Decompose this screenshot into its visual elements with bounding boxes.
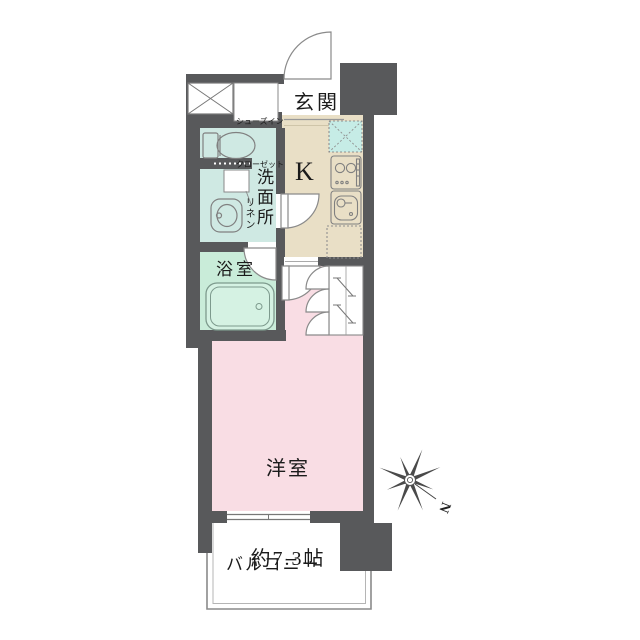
wall-segment [363, 115, 374, 523]
wall-segment [186, 74, 200, 348]
compass-ring [405, 475, 416, 486]
bathtub-outer [206, 283, 274, 330]
service-shaft [188, 83, 233, 114]
compass-north-label: N [435, 500, 453, 515]
closet [329, 266, 363, 335]
floorplan: N シューズイン クローゼット 玄関 K 洗面所 リネン 浴室 洋室 約7.3帖… [0, 0, 640, 640]
bathroom-label: 浴室 [216, 255, 256, 280]
entrance-label: 玄関 [294, 86, 340, 115]
washing-machine-space [329, 121, 362, 152]
wall-pillar-bottom-right [340, 523, 392, 571]
wall-pillar-top-right [340, 63, 397, 115]
wall-segment [198, 511, 227, 523]
entrance-door-arc [284, 32, 331, 79]
balcony-label: バルコニー [226, 550, 321, 575]
washroom-door-leaf [281, 194, 288, 228]
bathtub-icon [206, 283, 274, 330]
wall-segment [198, 330, 286, 341]
washer-pan [329, 121, 362, 152]
western-room-label: 洋室 約7.3帖 [238, 394, 338, 634]
western-room-name: 洋室 [238, 454, 338, 484]
linen-label: リネン [241, 197, 256, 230]
kitchen-label: K [295, 157, 314, 187]
shoes-closet-label-line1: シューズイン [236, 115, 280, 129]
wall-segment [200, 242, 248, 252]
compass-icon: N [367, 437, 453, 520]
room-door-leaf [282, 266, 289, 300]
